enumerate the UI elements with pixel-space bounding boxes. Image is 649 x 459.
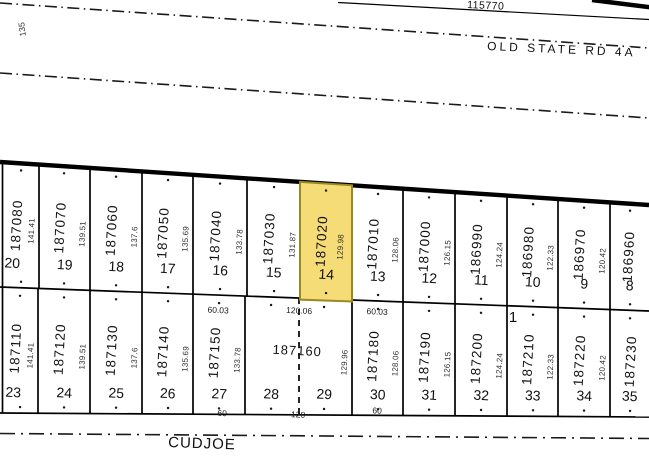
frontage-dim: 60.03: [366, 306, 388, 317]
lot-depth-dim: 120.42: [597, 355, 607, 381]
lot-depth-dim: 133.78: [232, 347, 242, 373]
lot-number: 26: [160, 385, 177, 402]
parcel-number: 187000: [416, 220, 434, 272]
lot-number: 29: [316, 386, 333, 403]
lot-number: 33: [525, 387, 542, 404]
road-edge-corner-line: [592, 0, 649, 8]
parcel-number: 187220: [571, 334, 589, 386]
parcel-number: 187130: [103, 324, 121, 376]
parcel-number: 187110: [7, 322, 25, 373]
parcel-number: 187190: [416, 331, 434, 383]
lot-depth-dim-selected: 129.98: [335, 233, 345, 259]
lot-number: 9: [580, 275, 589, 291]
lot-depth-dim: 139.51: [77, 343, 87, 369]
parcel-number: 187150: [206, 326, 224, 378]
lot-number: 20: [4, 254, 21, 271]
lot-number: 23: [5, 384, 22, 401]
lot-depth-dim: 122.33: [545, 353, 555, 379]
lot-number: 24: [56, 384, 73, 401]
lot-number: 25: [108, 384, 125, 401]
lot-depth-dim: 137.6: [129, 347, 139, 369]
frontage-dim: 60: [372, 405, 382, 415]
parcel-number: 186970: [571, 228, 589, 280]
road-centerline-second: [0, 73, 649, 118]
roads-top: 115770 OLD STATE RD 4A 135: [0, 0, 649, 118]
lot-depth-dim: 126.15: [442, 351, 452, 377]
parcel-number: 187140: [154, 325, 172, 377]
lot-depth-dim: 137.6: [129, 226, 139, 248]
lot-depth-dim: 128.06: [390, 236, 400, 262]
parcel-map-canvas: 115770 OLD STATE RD 4A 135: [0, 0, 649, 459]
parcel-number: 186960: [620, 231, 638, 283]
lot-depth-dim: 141.41: [26, 217, 36, 243]
parcel-number: 187120: [51, 323, 69, 375]
road-name-cudjoe: CUDJOE: [168, 434, 236, 453]
road-centerline-cudjoe: [0, 434, 649, 439]
road-id-label: 115770: [467, 0, 505, 13]
parcel-number: 187230: [622, 335, 640, 387]
lot-number: 30: [370, 386, 387, 403]
parcel-number: 187030: [260, 212, 278, 264]
lot-number: 18: [108, 258, 125, 275]
lot-depth-dim: 124.24: [494, 352, 504, 378]
lot-number: 11: [474, 271, 490, 288]
frontage-dim: 120: [291, 409, 306, 420]
lot-number: 35: [622, 388, 639, 405]
parcel-number: 187070: [51, 201, 69, 253]
lot-number: 31: [421, 386, 438, 403]
frontage-dim: 60.03: [207, 304, 229, 315]
parcel-number: 187200: [468, 332, 486, 384]
lot-depth-dim: 120.42: [597, 247, 607, 273]
lot-depth-dim: 133.78: [234, 228, 244, 254]
parcel-number: 187040: [207, 209, 225, 261]
lot-number: 10: [525, 273, 542, 290]
road-bottom: CUDJOE: [0, 434, 649, 454]
parcel-number: 187180: [364, 330, 382, 382]
lot-number: 13: [370, 268, 387, 285]
lot-number: 17: [160, 260, 177, 277]
parcel-number: 186990: [468, 223, 486, 275]
lot-number: 8: [625, 277, 634, 293]
edge-dimension-135: 135: [16, 21, 28, 37]
lot-depth-dim: 122.33: [545, 244, 555, 270]
parcel-number: 187080: [8, 199, 26, 251]
lot-depth-dim: 126.15: [442, 239, 452, 265]
lot-number: 28: [263, 385, 280, 402]
lot-number: 19: [57, 256, 74, 273]
parcel-number: 187060: [103, 204, 121, 256]
parcel-number: 187210: [519, 333, 537, 385]
lot-number: 16: [212, 262, 229, 279]
lot-number: 15: [266, 264, 283, 281]
lot-depth-dim: 128.06: [390, 350, 400, 376]
lot-depth-dim: 124.24: [494, 241, 504, 267]
frontage-dim: 120.06: [286, 305, 313, 316]
lot-number: 12: [421, 270, 438, 287]
parcel-number-selected: 187020: [313, 215, 331, 267]
lot-number: 27: [211, 385, 228, 402]
lot-depth-dim: 131.87: [287, 231, 297, 257]
lot-depth-dim: 141.41: [25, 342, 35, 368]
parcel-number: 187010: [364, 218, 382, 270]
lot-number: 32: [473, 387, 490, 404]
parcel-number: 187160: [272, 342, 322, 360]
lot-depth-dim: 135.69: [180, 346, 190, 372]
lot-depth-dim: 139.51: [77, 220, 87, 246]
block-number: 1: [509, 309, 517, 326]
lot-depth-dim: 129.96: [339, 349, 349, 375]
parcel-number: 187050: [154, 207, 172, 259]
parcel-map-viewport: 115770 OLD STATE RD 4A 135: [0, 0, 649, 459]
lot-depth-dim: 135.69: [180, 225, 190, 251]
parcel-number: 186980: [519, 226, 537, 278]
lot-number-selected: 14: [318, 266, 335, 283]
frontage-dim: 60: [217, 408, 227, 418]
road-name-old-state-rd: OLD STATE RD 4A: [487, 39, 636, 59]
lot-number: 34: [576, 387, 593, 404]
